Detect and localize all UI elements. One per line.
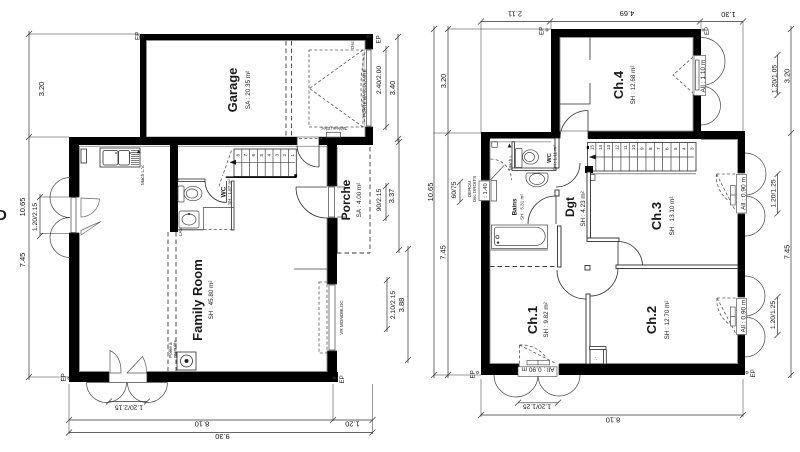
svg-text:Dsc DROITS: Dsc DROITS [472, 176, 477, 203]
svg-text:EP: EP [61, 373, 68, 381]
svg-text:All : 0.90 m: All : 0.90 m [741, 299, 748, 332]
svg-text:SH : 12.68 m²: SH : 12.68 m² [630, 66, 637, 105]
svg-text:2.40/2.00: 2.40/2.00 [376, 66, 383, 95]
svg-text:D: D [0, 207, 7, 224]
svg-text:7.45: 7.45 [783, 245, 792, 260]
svg-text:11: 11 [623, 145, 628, 150]
svg-text:EP: EP [539, 27, 546, 35]
svg-text:Ch.4: Ch.4 [611, 70, 626, 99]
svg-text:granulés: granulés [173, 340, 178, 358]
svg-text:10.65: 10.65 [426, 183, 435, 202]
svg-text:1.20/2.15: 1.20/2.15 [115, 404, 144, 411]
svg-text:Porche: Porche [339, 179, 353, 220]
svg-text:3.40: 3.40 [388, 81, 397, 96]
svg-text:SH : 1.87 m²: SH : 1.87 m² [227, 179, 232, 205]
svg-text:SH : 1.11 m²: SH : 1.11 m² [553, 145, 558, 171]
svg-text:All : 0.90 m: All : 0.90 m [741, 177, 748, 210]
svg-text:LAV: LAV [178, 227, 183, 236]
svg-text:1.20/2.15: 1.20/2.15 [32, 203, 39, 232]
svg-text:3.37: 3.37 [387, 189, 396, 204]
svg-text:Tableau Elec.: Tableau Elec. [320, 126, 348, 131]
svg-text:Dgt: Dgt [563, 197, 577, 217]
svg-text:7.45: 7.45 [439, 245, 448, 260]
svg-text:15: 15 [589, 144, 594, 150]
svg-text:12: 12 [615, 144, 620, 150]
svg-text:90/2.15: 90/2.15 [376, 188, 383, 211]
svg-text:SA : 4.00 m²: SA : 4.00 m² [356, 183, 363, 218]
svg-text:8.10: 8.10 [195, 420, 210, 429]
svg-text:SH : 9.82 m²: SH : 9.82 m² [543, 302, 550, 337]
svg-text:7: 7 [243, 154, 248, 157]
svg-text:EP: EP [470, 370, 477, 378]
svg-text:EP: EP [135, 32, 142, 40]
svg-text:1.20/1.25: 1.20/1.25 [770, 301, 777, 330]
svg-text:10.65: 10.65 [18, 198, 27, 217]
svg-text:2.11: 2.11 [508, 10, 522, 19]
svg-text:EP: EP [376, 35, 383, 43]
svg-text:SH : 12.70 m²: SH : 12.70 m² [664, 301, 671, 340]
svg-text:2.10/2.15: 2.10/2.15 [390, 291, 397, 320]
svg-text:60/75: 60/75 [451, 181, 458, 198]
svg-text:4: 4 [681, 147, 686, 150]
svg-text:1.30: 1.30 [721, 10, 736, 19]
svg-text:2: 2 [282, 154, 287, 157]
svg-text:6: 6 [665, 147, 670, 150]
svg-text:Garage: Garage [225, 68, 240, 113]
svg-text:7: 7 [656, 147, 661, 150]
svg-text:Bains: Bains [512, 198, 519, 215]
svg-text:3: 3 [690, 147, 695, 150]
svg-text:8.10: 8.10 [606, 416, 621, 425]
svg-text:EP: EP [704, 27, 711, 35]
svg-text:SA : 20.35 m²: SA : 20.35 m² [245, 71, 252, 109]
svg-text:: 1.40: : 1.40 [483, 183, 489, 198]
svg-text:SH : 4.23 m²: SH : 4.23 m² [580, 191, 587, 226]
svg-text:4: 4 [267, 154, 272, 157]
svg-text:SH : 5.31 m²: SH : 5.31 m² [520, 194, 525, 220]
svg-text:Family Room: Family Room [190, 259, 205, 341]
svg-text:EP: EP [339, 375, 346, 383]
svg-text:8: 8 [235, 154, 240, 157]
svg-text:3.20: 3.20 [37, 82, 46, 97]
svg-text:Mach L.: Mach L. [508, 154, 513, 170]
svg-text:Ch.1: Ch.1 [525, 306, 540, 334]
svg-text:3.20: 3.20 [439, 74, 448, 89]
svg-text:Ch.2: Ch.2 [644, 306, 659, 334]
svg-text:All : 0.90 m: All : 0.90 m [521, 366, 554, 373]
svg-text:EP: EP [750, 369, 757, 377]
svg-text:5: 5 [259, 154, 264, 157]
svg-text:3.88: 3.88 [397, 298, 406, 313]
svg-text:1: 1 [290, 154, 295, 157]
svg-text:5: 5 [673, 147, 678, 150]
svg-text:1.20/1.05: 1.20/1.05 [772, 65, 779, 94]
svg-text:Ch.3: Ch.3 [649, 202, 664, 230]
svg-text:14: 14 [598, 144, 603, 150]
svg-text:9: 9 [640, 147, 645, 150]
svg-text:1.20/1.25: 1.20/1.25 [523, 403, 552, 410]
svg-text:9.30: 9.30 [215, 432, 230, 441]
svg-text:13: 13 [606, 144, 611, 150]
svg-text:4.69: 4.69 [620, 9, 635, 18]
svg-text:10: 10 [631, 144, 636, 150]
svg-text:6: 6 [251, 154, 256, 157]
svg-text:.'.: .'. [594, 356, 597, 361]
svg-text:Mach L.V.: Mach L.V. [140, 165, 145, 185]
svg-text:3.20: 3.20 [783, 69, 792, 84]
svg-text:1.20: 1.20 [345, 420, 360, 429]
svg-text:Dsc: Dsc [350, 40, 355, 49]
svg-text:PORTE BASCULANTE: PORTE BASCULANTE [362, 69, 367, 117]
svg-text:3: 3 [274, 154, 279, 157]
svg-text:1.20/1.25: 1.20/1.25 [771, 179, 778, 208]
svg-text:VR MONOBLOC: VR MONOBLOC [339, 300, 344, 335]
svg-text:7.45: 7.45 [18, 253, 27, 268]
svg-text:All : 1.10 m: All : 1.10 m [700, 59, 707, 92]
svg-text:SH : 45.80 m²: SH : 45.80 m² [208, 281, 215, 320]
svg-text:SH : 13.10 m²: SH : 13.10 m² [669, 197, 676, 236]
svg-text:8: 8 [648, 147, 653, 150]
